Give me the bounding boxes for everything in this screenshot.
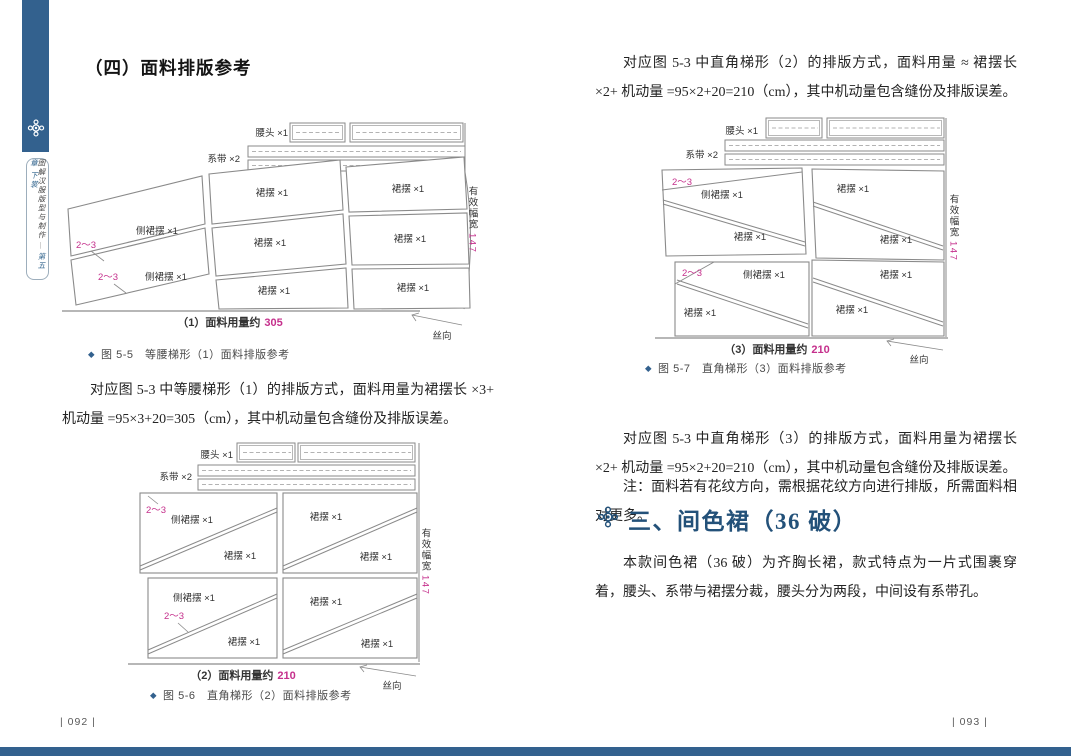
allowance-label: 2～3	[682, 268, 702, 279]
diamond-icon: ◆	[150, 690, 157, 700]
panel-label: 裙摆 ×1	[224, 550, 256, 562]
waistband-label: 腰头 ×1	[726, 125, 758, 137]
fabric-usage-text: （3）面料用量约210	[724, 342, 829, 356]
grain-arrow: 丝向	[412, 313, 462, 342]
allowance-label: 2～3	[98, 272, 118, 283]
right-paragraph-1: 对应图 5-3 中直角梯形（2）的排版方式，面料用量 ≈ 裙摆长 ×2+ 机动量…	[595, 50, 1017, 107]
panel-label: 裙摆 ×1	[361, 638, 393, 650]
fig-5-5-caption: ◆图 5-5 等腰梯形（1）面料排版参考	[88, 346, 290, 362]
spine-separator: —	[37, 242, 46, 250]
fabric-width-label: 有效幅宽147	[420, 528, 430, 595]
panel-label: 裙摆 ×1	[880, 234, 912, 246]
grain-label: 丝向	[382, 680, 401, 692]
knot-icon	[27, 118, 45, 143]
page-number-left: | 092 |	[60, 716, 96, 728]
panel-label: 裙摆 ×1	[392, 183, 424, 195]
panel-label: 裙摆 ×1	[256, 187, 288, 199]
left-page-heading: （四）面料排版参考	[85, 55, 252, 80]
panel-label: 裙摆 ×1	[734, 231, 766, 243]
page-number-right: | 093 |	[952, 716, 988, 728]
side-panel-label: 侧裙摆 ×1	[701, 189, 743, 201]
panel-label: 裙摆 ×1	[228, 636, 260, 648]
panel-label: 裙摆 ×1	[880, 269, 912, 281]
ornament-icon	[597, 505, 619, 534]
side-panel-label: 侧裙摆 ×1	[743, 269, 785, 281]
panel-label: 裙摆 ×1	[310, 511, 342, 523]
panel-label: 裙摆 ×1	[684, 307, 716, 319]
diamond-icon: ◆	[645, 363, 652, 373]
grain-arrow: 丝向	[360, 665, 416, 692]
waistband-label: 腰头 ×1	[256, 127, 288, 139]
side-panel-label: 侧裙摆 ×1	[171, 514, 213, 526]
grain-label: 丝向	[909, 354, 928, 366]
panel-label: 裙摆 ×1	[837, 183, 869, 195]
section-heading-block: 三、间色裙（36 破）	[597, 502, 857, 536]
fabric-width-label: 有效幅宽147	[948, 194, 958, 261]
grain-arrow: 丝向	[887, 339, 943, 366]
fig-5-5-diagram: 腰头 ×1 系带 ×2 侧裙摆 ×1 2～3 侧裙摆 ×1 2～3 裙摆 ×1 …	[62, 112, 502, 352]
grain-label: 丝向	[432, 330, 451, 342]
panel-label: 裙摆 ×1	[360, 551, 392, 563]
allowance-label: 2～3	[164, 611, 184, 622]
fabric-usage-text: （1）面料用量约305	[177, 315, 282, 329]
tie-label: 系带 ×2	[160, 472, 192, 483]
fig-5-7-caption: ◆图 5-7 直角梯形（3）面料排版参考	[645, 360, 847, 376]
fabric-usage-text: （2）面料用量约210	[190, 668, 295, 682]
fig-5-6-caption: ◆图 5-6 直角梯形（2）面料排版参考	[150, 687, 352, 703]
panel-label: 裙摆 ×1	[258, 285, 290, 297]
fig-5-6-diagram: 腰头 ×1 系带 ×2 2～3 侧裙摆 ×1 裙摆 ×1 裙摆 ×1 裙摆 ×1…	[128, 438, 440, 692]
diamond-icon: ◆	[88, 349, 95, 359]
allowance-label: 2～3	[672, 177, 692, 188]
panel-label: 裙摆 ×1	[836, 304, 868, 316]
fig-5-7-diagram: 腰头 ×1 系带 ×2 2～3 侧裙摆 ×1 裙摆 ×1 裙摆 ×1 裙摆 ×1…	[650, 112, 962, 368]
fabric-width-label: 有效幅宽147	[467, 186, 477, 253]
panel-label: 裙摆 ×1	[254, 237, 286, 249]
waistband-label: 腰头 ×1	[201, 449, 233, 461]
bottom-accent-bar	[0, 747, 1071, 756]
panel-label: 裙摆 ×1	[310, 596, 342, 608]
section-heading: 三、间色裙（36 破）	[628, 502, 857, 536]
spine-ribbon	[22, 0, 49, 152]
spine-box: 图解汉服版型与制作—第五章 下裳	[26, 158, 49, 280]
spine-volume: 下裳	[30, 171, 39, 189]
book-spread: 图解汉服版型与制作—第五章 下裳 （四）面料排版参考 腰头 ×1 系带 ×2 侧…	[0, 0, 1071, 756]
side-panel-label: 侧裙摆 ×1	[136, 225, 178, 237]
tie-label: 系带 ×2	[208, 154, 240, 165]
allowance-label: 2～3	[76, 240, 96, 251]
allowance-label: 2～3	[146, 505, 166, 516]
left-paragraph: 对应图 5-3 中等腰梯形（1）的排版方式，面料用量为裙摆长 ×3+ 机动量 =…	[62, 377, 494, 434]
side-panel-label: 侧裙摆 ×1	[173, 592, 215, 604]
panel-label: 裙摆 ×1	[394, 233, 426, 245]
right-paragraph-3: 本款间色裙（36 破）为齐胸长裙，款式特点为一片式围裹穿着，腰头、系带与裙摆分裁…	[595, 550, 1017, 607]
panel-label: 裙摆 ×1	[397, 282, 429, 294]
side-panel-label: 侧裙摆 ×1	[145, 271, 187, 283]
tie-label: 系带 ×2	[686, 150, 718, 161]
